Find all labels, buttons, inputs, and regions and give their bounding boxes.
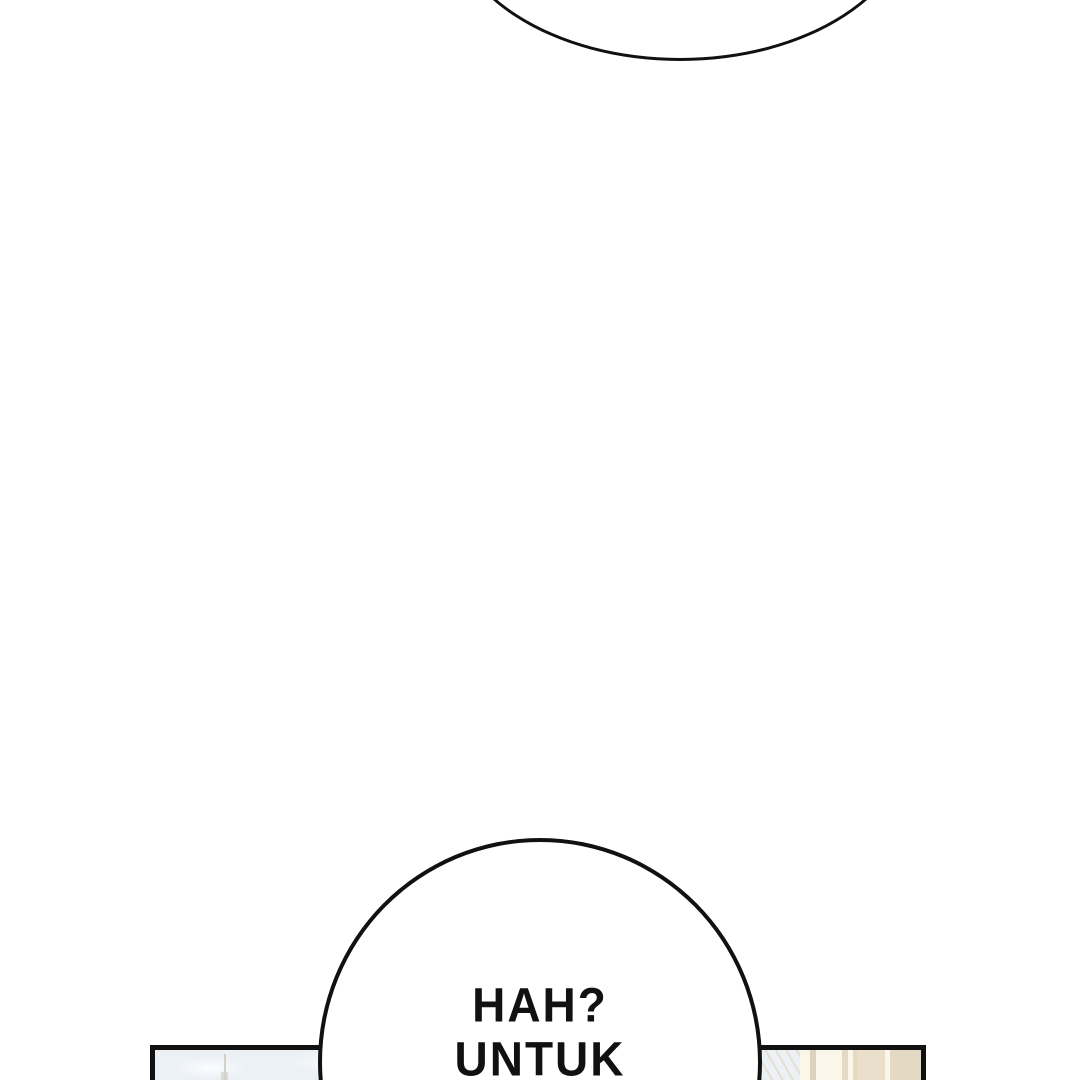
comic-page: HAH? UNTUK xyxy=(0,0,1080,1080)
speech-bubble-main: HAH? UNTUK xyxy=(318,838,762,1080)
speech-line: UNTUK xyxy=(322,1032,758,1080)
speech-text: HAH? UNTUK xyxy=(322,978,758,1080)
speech-line: HAH? xyxy=(322,978,758,1032)
tower-spire-base xyxy=(221,1072,228,1080)
building-facade xyxy=(800,1050,921,1080)
speech-bubble-top-partial xyxy=(447,0,913,61)
cloud xyxy=(160,1053,260,1080)
